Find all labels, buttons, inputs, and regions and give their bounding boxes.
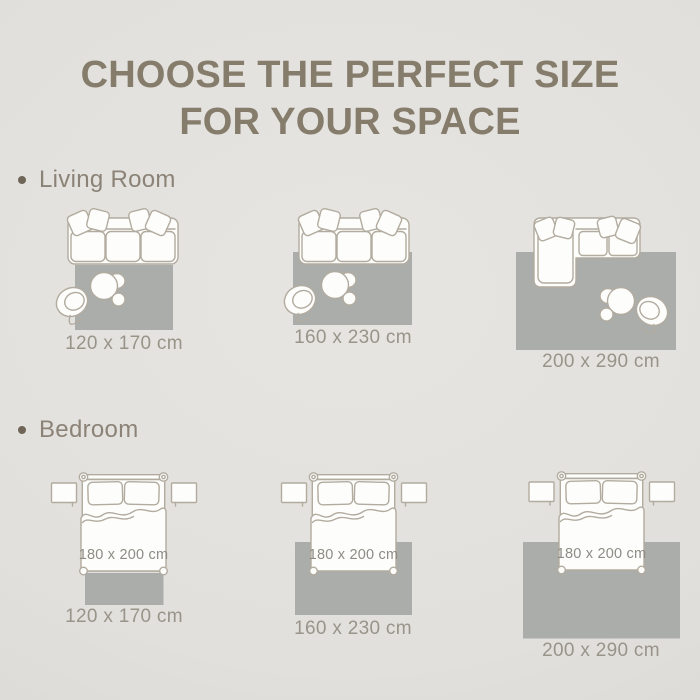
rug-size-caption-bedroom-1: 120 x 170 cm: [65, 606, 183, 628]
bedroom-figure-160x230: [282, 473, 427, 615]
rug-swatch: [85, 573, 164, 605]
nightstand-top-view-icon: [650, 482, 675, 502]
living-room-figure-200x290: [516, 215, 676, 350]
bed-dimension-label: 180 x 200 cm: [309, 547, 398, 563]
rug-size-caption-living-3: 200 x 290 cm: [542, 351, 660, 373]
rug-size-caption-bedroom-3: 200 x 290 cm: [542, 640, 660, 662]
living-room-figure-160x230: [279, 208, 412, 326]
rug-size-guide-poster: CHOOSE THE PERFECT SIZE FOR YOUR SPACE L…: [0, 0, 700, 700]
nightstand-top-view-icon: [529, 482, 554, 502]
nightstand-top-view-icon: [282, 483, 307, 503]
bed-dimension-label: 180 x 200 cm: [557, 546, 646, 562]
bedroom-figure-120x170: [52, 473, 197, 605]
rug-size-caption-living-2: 160 x 230 cm: [294, 327, 412, 349]
bed-dimension-label: 180 x 200 cm: [79, 547, 168, 563]
rug-size-caption-bedroom-2: 160 x 230 cm: [294, 618, 412, 640]
living-room-figure-120x170: [51, 208, 178, 330]
sofa-top-view-icon: [297, 208, 409, 264]
nightstand-top-view-icon: [402, 483, 427, 503]
nightstand-top-view-icon: [172, 483, 197, 503]
sofa-top-view-icon: [66, 208, 178, 264]
nightstand-top-view-icon: [52, 483, 77, 503]
rug-size-caption-living-1: 120 x 170 cm: [65, 333, 183, 355]
